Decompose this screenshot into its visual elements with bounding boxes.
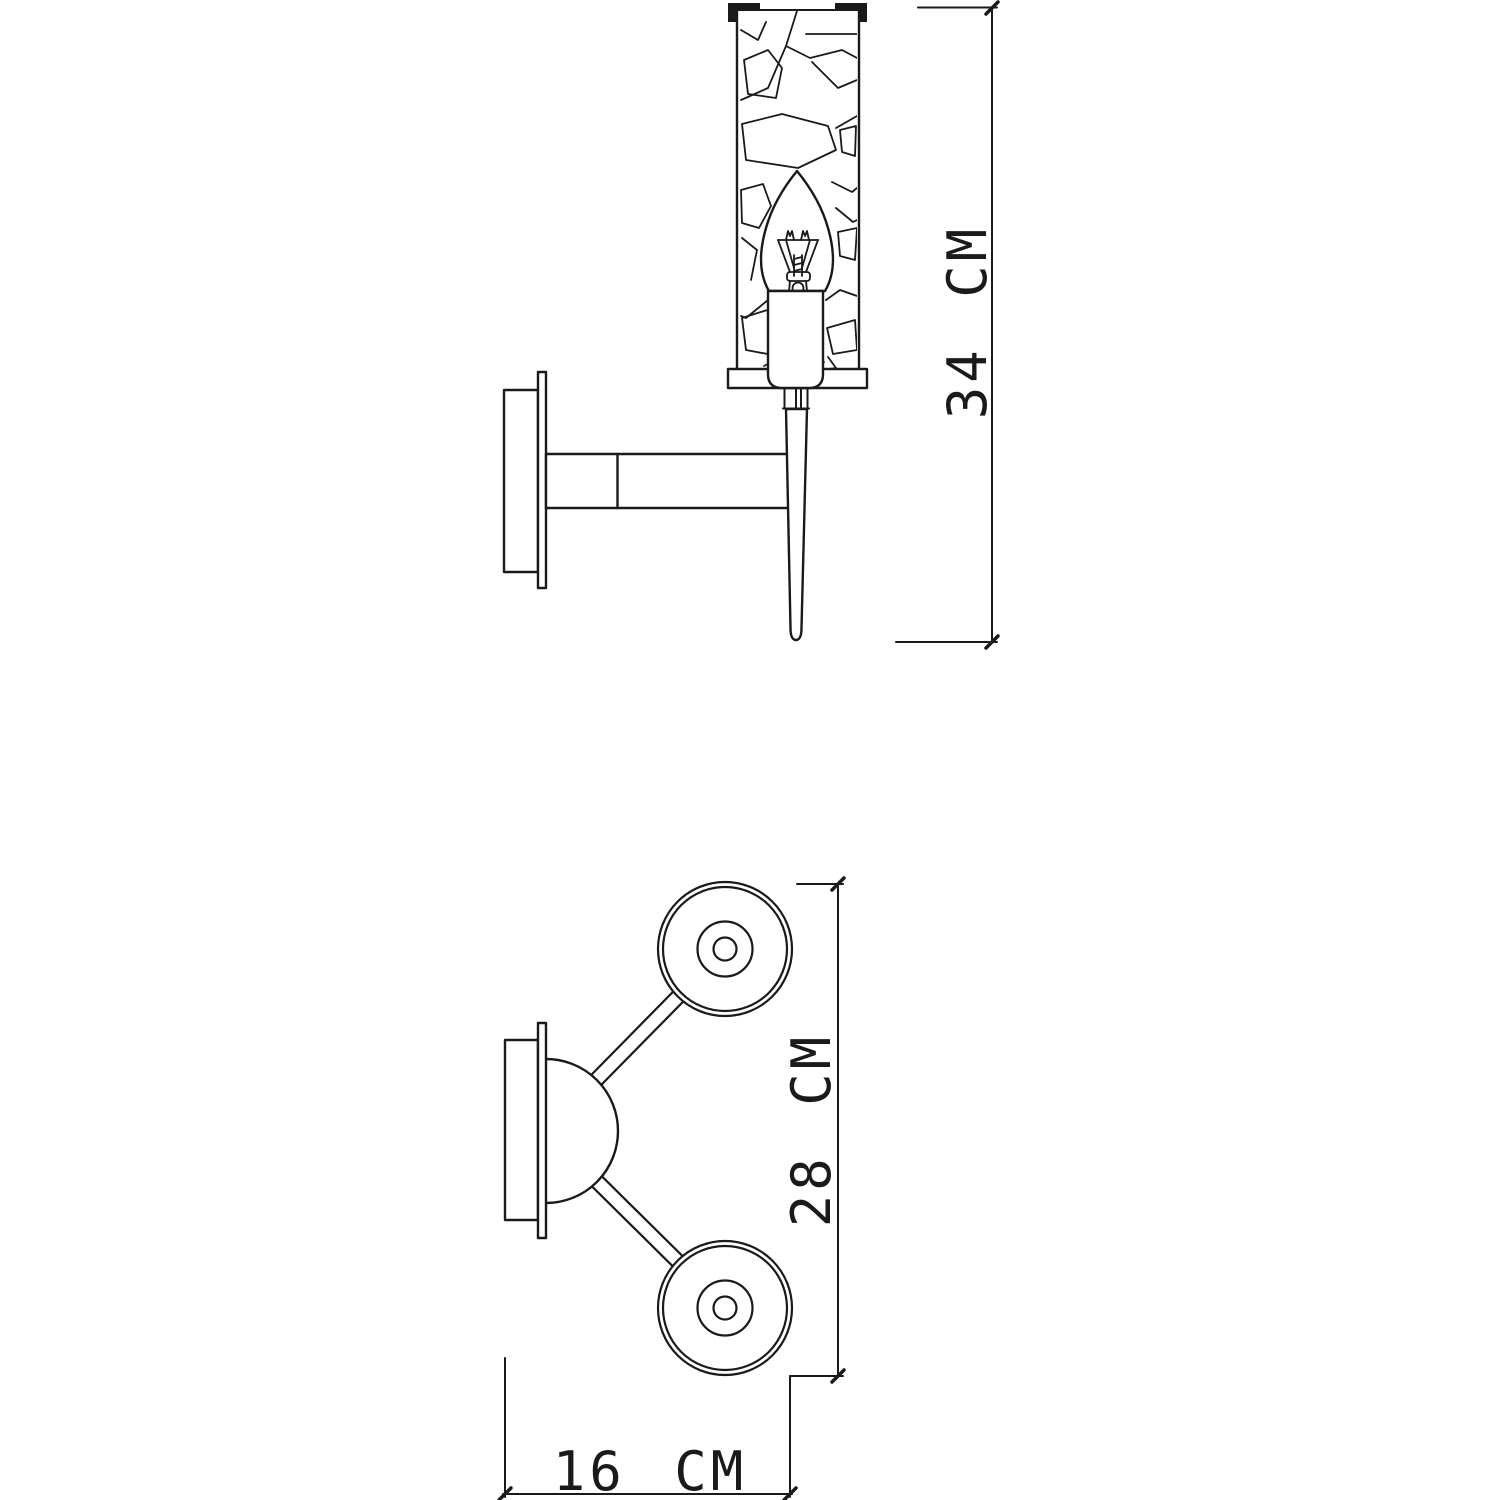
torch-stem (786, 409, 807, 640)
shade-top-bracket-right (835, 3, 867, 22)
wall-plate-plan (505, 1023, 618, 1238)
candle-bulb (761, 171, 833, 294)
socket-cup (768, 291, 823, 388)
side-view (504, 3, 867, 640)
mount-flange-plan (538, 1023, 546, 1238)
shade-top-upper (658, 882, 792, 1016)
holder-neck (783, 388, 809, 409)
bulb-glass (761, 171, 833, 291)
drawing-canvas: 34 CM 28 CM 16 CM (0, 0, 1500, 1500)
mount-backbox-side (504, 390, 538, 572)
shade-top-lower (658, 1241, 792, 1375)
wall-mount-side (504, 372, 790, 588)
plan-view (505, 882, 792, 1375)
shade-top-bracket-left (728, 3, 760, 22)
mount-backbox-plan (505, 1040, 538, 1220)
dimension-label-span: 28 CM (784, 1005, 840, 1255)
dimension-label-depth: 16 CM (525, 1444, 775, 1500)
mount-arm-side (546, 454, 790, 508)
dimension-label-height: 34 CM (940, 197, 996, 447)
sconce-technical-drawing (0, 0, 1500, 1500)
